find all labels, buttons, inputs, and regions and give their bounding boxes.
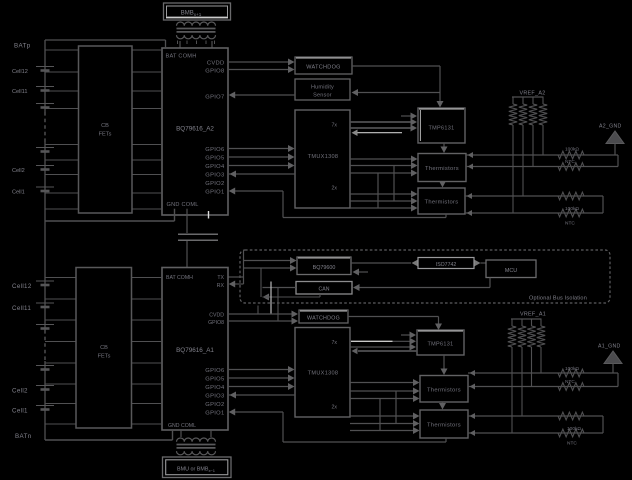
svg-text:CB: CB — [101, 123, 109, 129]
svg-text:VREF_A1: VREF_A1 — [520, 312, 546, 318]
svg-text:TMP6131: TMP6131 — [428, 342, 454, 348]
svg-text:TMUX1308: TMUX1308 — [308, 154, 339, 160]
svg-text:BAT COMH: BAT COMH — [166, 54, 197, 60]
svg-text:GPIO4: GPIO4 — [205, 164, 225, 170]
svg-text:CAN: CAN — [319, 287, 330, 293]
svg-text:GPIO1: GPIO1 — [205, 189, 224, 195]
svg-text:NTC: NTC — [565, 159, 575, 165]
svg-text:Optional Bus Isolation: Optional Bus Isolation — [529, 296, 587, 302]
svg-text:Cell1: Cell1 — [12, 407, 28, 414]
svg-text:Cell1: Cell1 — [12, 190, 25, 196]
svg-text:A1_GND: A1_GND — [598, 344, 621, 350]
svg-text:GPIO5: GPIO5 — [205, 155, 224, 161]
svg-text:GPIO1: GPIO1 — [205, 410, 224, 416]
svg-text:Cell2: Cell2 — [12, 387, 28, 394]
svg-text:GPIO4: GPIO4 — [205, 385, 225, 391]
svg-text:100kΩ: 100kΩ — [567, 426, 581, 432]
svg-text:TMUX1308: TMUX1308 — [308, 371, 339, 377]
svg-text:TMP6131: TMP6131 — [429, 126, 455, 132]
svg-text:7x: 7x — [332, 340, 338, 346]
svg-text:100kΩ: 100kΩ — [565, 206, 579, 212]
svg-text:BQ79616_A1: BQ79616_A1 — [176, 347, 214, 354]
svg-text:Cell12: Cell12 — [12, 69, 28, 75]
svg-text:GPIO5: GPIO5 — [205, 376, 224, 382]
svg-text:GPIO8: GPIO8 — [208, 320, 224, 326]
svg-text:NTC: NTC — [565, 221, 575, 227]
svg-text:Cell12: Cell12 — [12, 283, 32, 290]
svg-text:GPIO6: GPIO6 — [205, 368, 224, 374]
svg-text:NTC: NTC — [567, 441, 577, 447]
svg-text:7x: 7x — [332, 123, 338, 129]
svg-text:MCU: MCU — [505, 268, 517, 274]
svg-text:Thermistors: Thermistors — [425, 200, 459, 206]
svg-text:GND COML: GND COML — [167, 202, 199, 208]
svg-text:GPIO2: GPIO2 — [205, 181, 224, 187]
svg-text:BMU or BMBx−1: BMU or BMBx−1 — [177, 467, 216, 474]
svg-text:CB: CB — [100, 345, 108, 351]
svg-text:GPIO3: GPIO3 — [205, 393, 224, 399]
svg-text:GPIO7: GPIO7 — [205, 95, 224, 101]
svg-text:A2_GND: A2_GND — [599, 124, 622, 130]
svg-text:Cell2: Cell2 — [12, 168, 25, 174]
svg-text:GND COML: GND COML — [168, 423, 196, 429]
svg-text:FETs: FETs — [98, 354, 111, 360]
svg-text:Thermistors: Thermistors — [427, 388, 461, 394]
svg-text:ISO7742: ISO7742 — [436, 262, 457, 268]
svg-text:Sensor: Sensor — [313, 93, 332, 99]
svg-text:WATCHDOG: WATCHDOG — [307, 316, 340, 322]
svg-text:BQ79600: BQ79600 — [313, 265, 336, 271]
svg-text:2x: 2x — [332, 405, 338, 411]
svg-text:BMBx+1: BMBx+1 — [181, 11, 202, 18]
svg-text:GPIO6: GPIO6 — [205, 147, 224, 153]
svg-text:GPIO3: GPIO3 — [205, 172, 224, 178]
svg-text:100kΩ: 100kΩ — [565, 366, 579, 372]
svg-text:Cell11: Cell11 — [12, 89, 27, 95]
svg-text:2x: 2x — [332, 186, 338, 192]
svg-text:BATn: BATn — [15, 433, 32, 440]
svg-text:VREF_A2: VREF_A2 — [519, 91, 545, 97]
svg-text:BQ79616_A2: BQ79616_A2 — [176, 126, 214, 133]
svg-text:GPIO2: GPIO2 — [205, 402, 224, 408]
svg-text:TX: TX — [217, 275, 224, 281]
svg-text:FETs: FETs — [99, 132, 112, 138]
svg-text:GPIO8: GPIO8 — [205, 69, 224, 75]
svg-text:Cell11: Cell11 — [12, 305, 31, 312]
svg-text:CVDD: CVDD — [209, 313, 224, 319]
svg-text:100kΩ: 100kΩ — [565, 147, 579, 153]
svg-text:CVDD: CVDD — [207, 61, 225, 67]
svg-text:NTC: NTC — [565, 379, 575, 385]
svg-text:WATCHDOG: WATCHDOG — [306, 65, 340, 71]
svg-text:RX: RX — [217, 283, 225, 289]
svg-text:Humidity: Humidity — [311, 85, 334, 91]
svg-text:Thermistors: Thermistors — [427, 423, 461, 429]
svg-text:BATp: BATp — [14, 43, 31, 50]
svg-text:Thermistors: Thermistors — [425, 166, 459, 172]
svg-text:BAT COMH: BAT COMH — [166, 275, 193, 281]
